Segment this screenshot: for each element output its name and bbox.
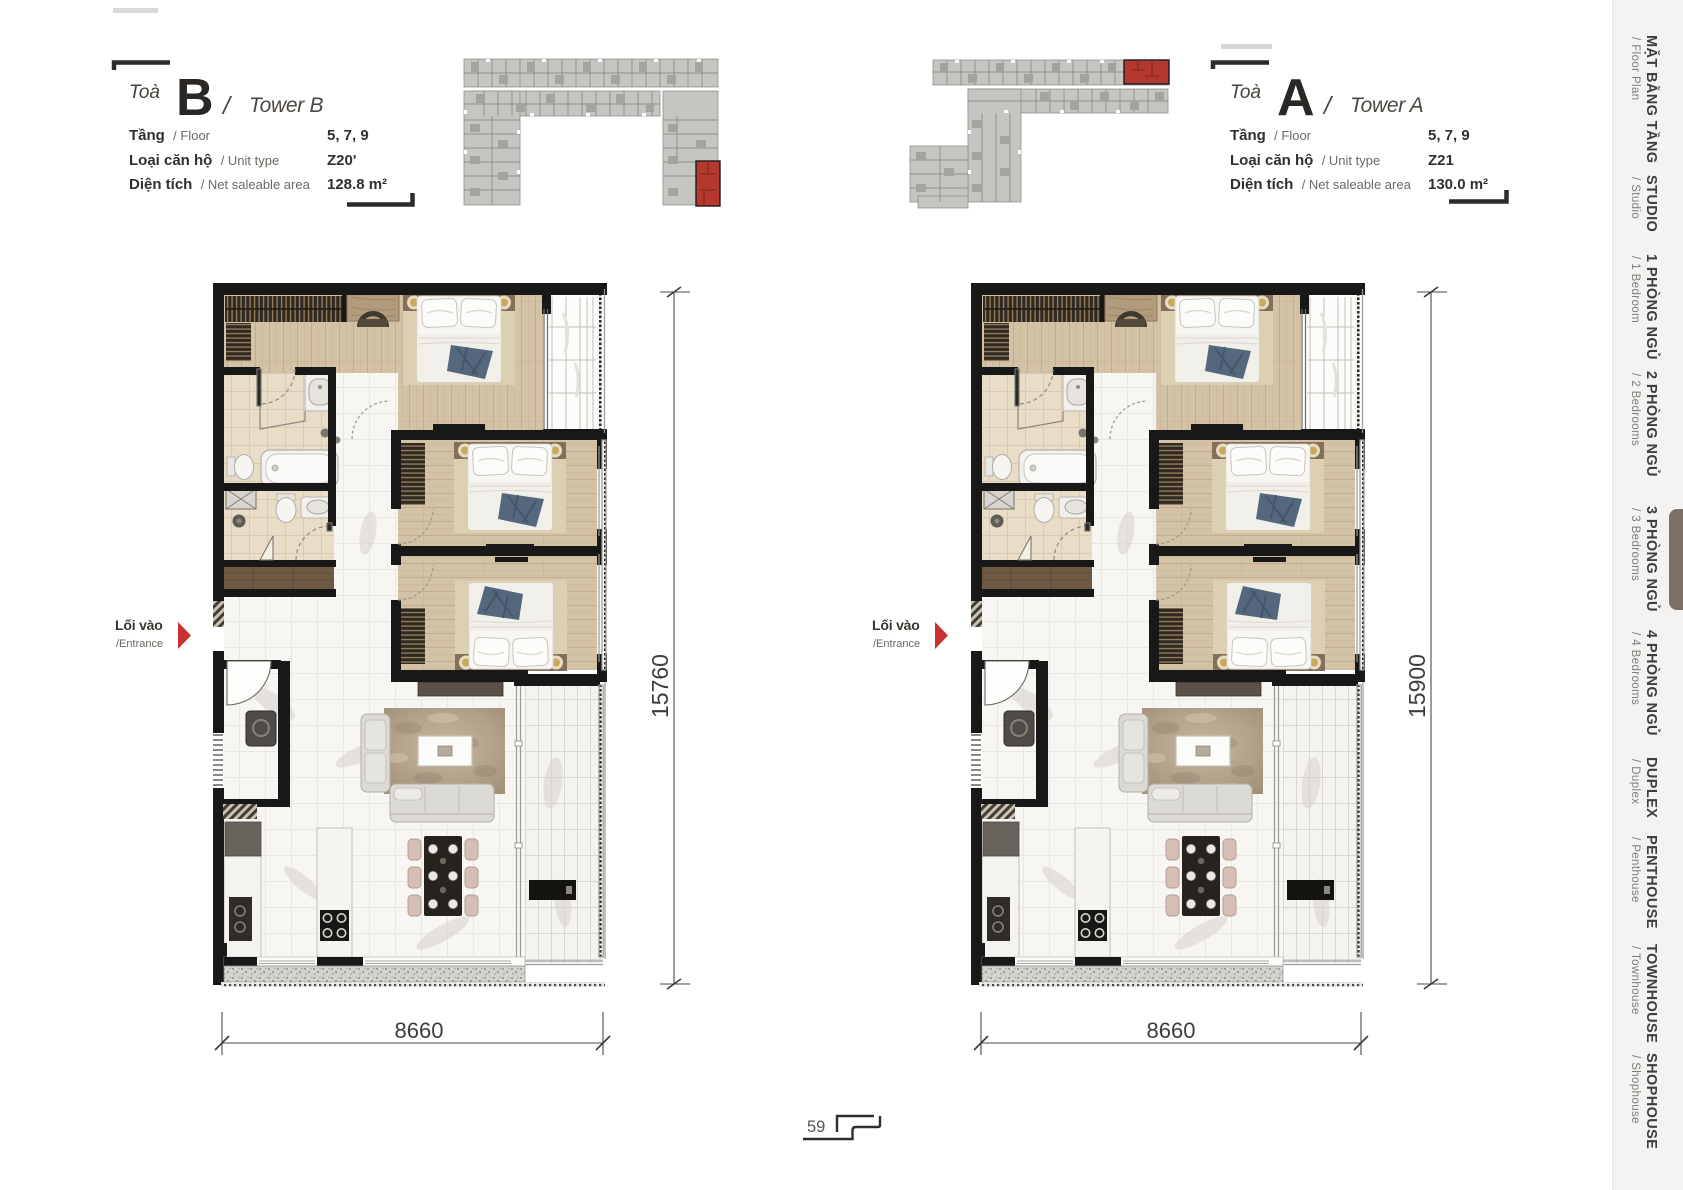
svg-text:15900: 15900	[1404, 654, 1430, 718]
svg-text:8660: 8660	[395, 1018, 444, 1043]
svg-text:15760: 15760	[647, 654, 673, 718]
svg-text:8660: 8660	[1147, 1018, 1196, 1043]
